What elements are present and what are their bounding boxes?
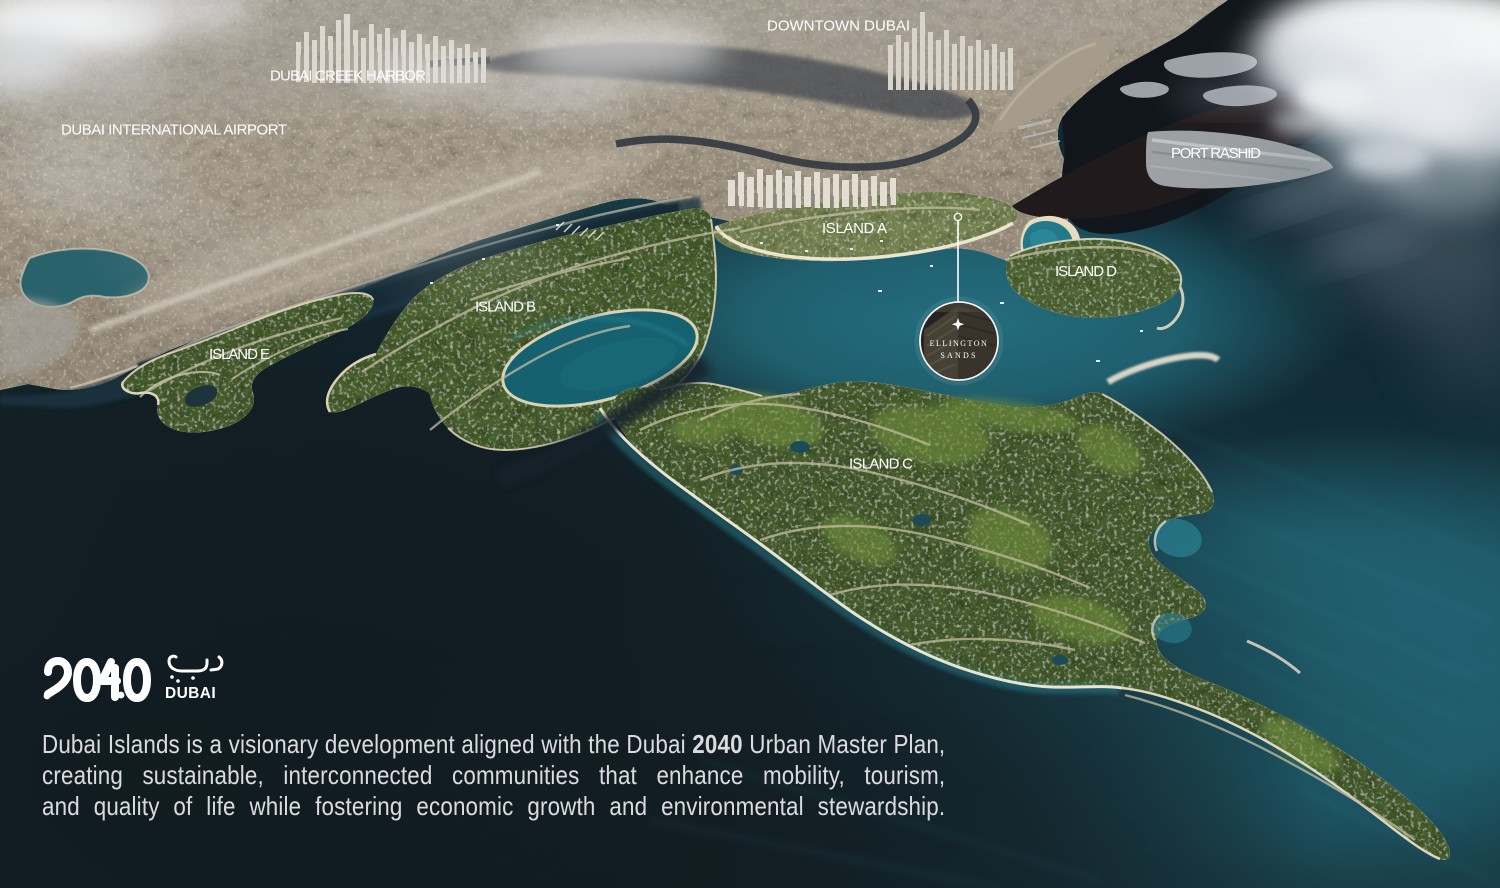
svg-text:ISLAND C: ISLAND C xyxy=(849,456,914,473)
svg-text:DUBAI: DUBAI xyxy=(165,685,216,702)
svg-text:DUBAI INTERNATIONAL AIRPORT: DUBAI INTERNATIONAL AIRPORT xyxy=(61,122,288,139)
svg-text:ELLINGTON: ELLINGTON xyxy=(930,339,989,348)
svg-text:ISLAND D: ISLAND D xyxy=(1055,263,1118,280)
svg-text:SANDS: SANDS xyxy=(940,351,977,360)
svg-text:PORT RASHID: PORT RASHID xyxy=(1171,145,1262,162)
svg-text:ISLAND A: ISLAND A xyxy=(822,220,888,237)
svg-text:DOWNTOWN DUBAI: DOWNTOWN DUBAI xyxy=(767,18,911,35)
svg-text:ISLAND B: ISLAND B xyxy=(475,299,537,316)
svg-text:DUBAI CREEK HARBOR: DUBAI CREEK HARBOR xyxy=(270,68,427,85)
svg-text:ISLAND E: ISLAND E xyxy=(209,346,271,363)
